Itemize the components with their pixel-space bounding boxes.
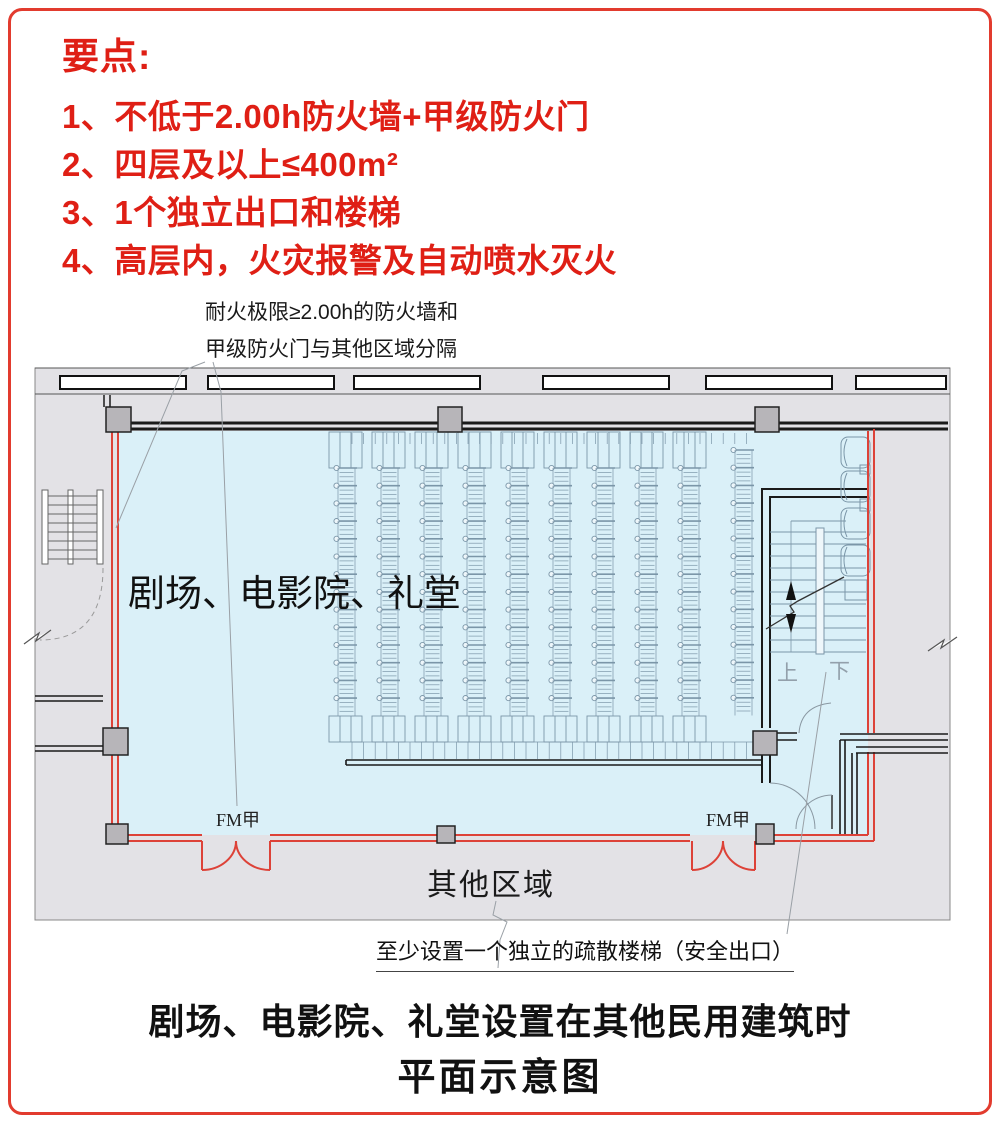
stair-down-label: 下 xyxy=(829,655,850,685)
key-point-4: 4、高层内，火灾报警及自动喷水灭火 xyxy=(62,237,617,285)
key-point-1: 1、不低于2.00h防火墙+甲级防火门 xyxy=(62,93,617,141)
window xyxy=(208,376,334,389)
stair-exit-annotation: 至少设置一个独立的疏散楼梯（安全出口） xyxy=(376,934,794,972)
firewall-annotation: 耐火极限≥2.00h的防火墙和 甲级防火门与其他区域分隔 xyxy=(205,294,458,368)
caption-title: 剧场、电影院、礼堂设置在其他民用建筑时 xyxy=(0,993,1000,1045)
window xyxy=(856,376,946,389)
key-point-3: 3、1个独立出口和楼梯 xyxy=(62,189,617,237)
window xyxy=(354,376,480,389)
caption-subtitle: 平面示意图 xyxy=(0,1046,1000,1101)
stair-up-label: 上 xyxy=(777,657,798,687)
key-point-2: 2、四层及以上≤400m² xyxy=(62,141,617,189)
fire-door-label-right: FM甲 xyxy=(706,806,750,832)
fire-door-label-left: FM甲 xyxy=(216,806,260,832)
theater-room-area xyxy=(117,431,868,835)
window xyxy=(706,376,832,389)
page: 要点: 1、不低于2.00h防火墙+甲级防火门 2、四层及以上≤400m² 3、… xyxy=(0,0,1000,1123)
firewall-annotation-line2: 甲级防火门与其他区域分隔 xyxy=(205,331,458,368)
room-label: 剧场、电影院、礼堂 xyxy=(128,563,461,617)
firewall-annotation-line1: 耐火极限≥2.00h的防火墙和 xyxy=(205,294,458,331)
key-points-heading: 要点: xyxy=(62,26,617,80)
other-area-label: 其他区域 xyxy=(427,860,555,904)
window xyxy=(60,376,186,389)
window xyxy=(543,376,669,389)
key-points-block: 要点: 1、不低于2.00h防火墙+甲级防火门 2、四层及以上≤400m² 3、… xyxy=(62,26,617,285)
